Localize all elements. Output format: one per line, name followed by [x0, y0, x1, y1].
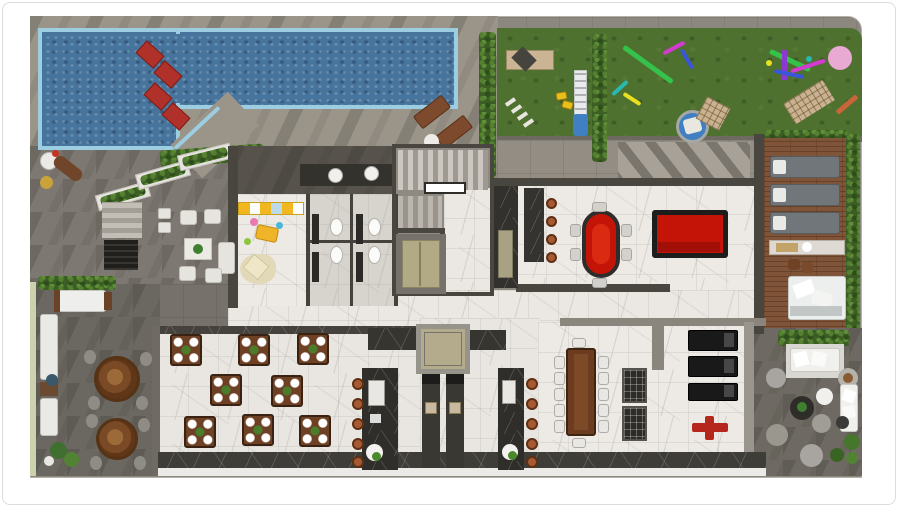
hedge-deck-right — [846, 134, 860, 332]
rt1-chair-1 — [84, 350, 96, 364]
toilet-4 — [368, 246, 381, 264]
bar-sink-left-small — [370, 414, 381, 423]
terrace-steps — [102, 202, 142, 238]
slide-base — [573, 114, 588, 136]
restroom-wall-mid — [308, 240, 398, 243]
dining-table-4 — [210, 374, 242, 406]
lounge-pouf-4 — [800, 444, 823, 467]
deck-chair-1 — [788, 259, 800, 270]
armchair-2 — [204, 209, 221, 224]
deck-counter-plate — [802, 242, 812, 252]
kids-toy-pink — [250, 218, 258, 226]
bar-stool-l4 — [352, 438, 364, 450]
lounge-dark-table-plant — [797, 402, 807, 412]
rt1-chair-3 — [88, 396, 100, 410]
long-table-chair-head — [572, 338, 586, 348]
long-table-chair-l3 — [554, 388, 565, 401]
poker-chair-6 — [592, 278, 607, 288]
dining-table-3 — [297, 333, 329, 365]
poker-chair-3 — [621, 224, 632, 237]
poker-table-inner — [592, 224, 610, 264]
dining-table-7 — [242, 414, 274, 446]
bl-bench-1 — [40, 314, 58, 380]
bar-stool-l5 — [352, 456, 364, 468]
kids-toy-blue — [276, 222, 283, 229]
armchair-4 — [205, 268, 222, 283]
left-wall — [30, 282, 36, 476]
poker-chair-1 — [570, 224, 581, 237]
lounge-plant-1 — [844, 434, 860, 450]
long-table-chair-r4 — [598, 404, 609, 417]
gym-bench-red-v — [705, 416, 714, 440]
lounge-pouf-1 — [766, 368, 786, 388]
toilet-3 — [368, 218, 381, 236]
rt2-chair-2 — [138, 418, 150, 432]
skylight-inner — [424, 332, 462, 366]
lounge-pouf-3 — [766, 424, 788, 446]
gym-machine-1-pad — [724, 333, 734, 347]
deck-counter-tray — [776, 243, 798, 252]
long-table-runner — [574, 354, 588, 430]
bl-planter-row — [38, 276, 116, 290]
bar-stool-l1 — [352, 378, 364, 390]
poker-chair-5 — [592, 202, 607, 212]
rt1-chair-4 — [136, 396, 148, 410]
gym-dot-teal — [806, 56, 812, 62]
gym-machine-3-pad — [724, 385, 734, 397]
bar-back-counter-right — [470, 330, 506, 350]
dining-table-1 — [170, 334, 202, 366]
toilet-1 — [330, 218, 343, 236]
bl-sofa-arm-1 — [54, 290, 60, 312]
buffet-station-2-top — [446, 374, 464, 384]
pool-merge-b — [44, 34, 452, 103]
bottom-walkway — [158, 468, 766, 476]
sun-lounger-pillow-2 — [773, 188, 786, 202]
armchair-1 — [180, 210, 197, 225]
dining-table-8 — [299, 415, 331, 447]
bar-stool-r5 — [526, 456, 538, 468]
coffee-machine-2 — [449, 402, 461, 414]
small-chair-2 — [158, 222, 171, 233]
billiard-table-shade — [658, 242, 720, 252]
rt2-chair-3 — [90, 456, 102, 470]
wine-rack-2 — [622, 406, 647, 441]
bar-stool-r1 — [526, 378, 538, 390]
games-room-wall-right — [754, 134, 764, 334]
bar-stool-r3 — [526, 418, 538, 430]
long-table-chair-l5 — [554, 420, 565, 433]
bar-stool-r4 — [526, 438, 538, 450]
kids-lockers — [238, 202, 304, 215]
coffee-table-plant — [193, 244, 203, 254]
lounge-white-table — [816, 388, 833, 405]
bar-stool-l3 — [352, 418, 364, 430]
column-block — [652, 324, 664, 370]
stall-block-4 — [356, 252, 363, 282]
rt1-chair-2 — [140, 352, 152, 366]
lounge-cushion-2 — [811, 351, 827, 367]
core-wall-top — [392, 144, 494, 148]
stair-landing-sign — [424, 182, 466, 194]
poker-chair-4 — [621, 248, 632, 261]
pink-play-circle — [828, 46, 852, 70]
private-dining-wall-right — [744, 322, 754, 470]
rt2-chair-4 — [134, 456, 146, 470]
gym-dot-yellow — [766, 60, 772, 66]
bl-plant-2 — [64, 452, 79, 467]
lounge-side-table-tray — [843, 373, 853, 383]
long-table-chair-foot — [572, 438, 586, 448]
sun-lounger-pillow-1 — [773, 160, 786, 174]
restroom-wall-1 — [306, 194, 310, 306]
long-table-chair-r3 — [598, 388, 609, 401]
games-room-wall-top — [494, 178, 764, 186]
wine-rack-1 — [622, 368, 647, 403]
games-bar-stool-1 — [546, 198, 557, 209]
gym-machine-2-pad — [724, 359, 734, 373]
buffet-station-2 — [446, 374, 464, 468]
terrace-corner — [150, 284, 232, 330]
coffee-machine-1 — [425, 402, 437, 414]
long-table-chair-l1 — [554, 356, 565, 369]
games-bar-counter — [524, 188, 544, 262]
bar-plant-right — [508, 451, 517, 460]
bl-bench-2 — [40, 398, 58, 436]
games-room-door — [498, 230, 513, 278]
long-table-chair-r2 — [598, 372, 609, 385]
sun-lounger-pillow-3 — [773, 216, 786, 230]
long-table-chair-l2 — [554, 372, 565, 385]
dining-table-5 — [271, 375, 303, 407]
bl-pot-white — [44, 456, 54, 466]
games-bar-stool-2 — [546, 216, 557, 227]
slide-tower — [574, 70, 587, 118]
round-table-2 — [96, 418, 138, 460]
long-table-chair-r1 — [598, 356, 609, 369]
kids-toy-green — [244, 238, 251, 245]
buffet-station-1-top — [422, 374, 440, 384]
bl-sofa-top — [58, 290, 106, 312]
long-table-chair-r5 — [598, 420, 609, 433]
games-bar-stool-4 — [546, 252, 557, 263]
lounge-pouf-2 — [812, 414, 831, 433]
wall-kids-left — [228, 146, 238, 308]
stall-block-3 — [356, 214, 363, 244]
small-chair-1 — [158, 208, 171, 219]
restroom-wall-2 — [350, 194, 353, 306]
elevator-door-line — [419, 242, 421, 286]
wash-basin-1 — [328, 168, 343, 183]
staircase-lower — [398, 196, 442, 232]
restroom-floor — [308, 194, 398, 306]
floor-plan-rendering — [0, 0, 900, 509]
elevator-lobby — [444, 188, 494, 294]
bar-stool-l2 — [352, 398, 364, 410]
toilet-2 — [330, 246, 343, 264]
bl-sofa-arm-2 — [104, 292, 112, 310]
poker-chair-2 — [570, 248, 581, 261]
bar-back-counter-left — [368, 328, 416, 350]
hedge-mid-lawn — [592, 34, 607, 162]
round-table-1 — [94, 356, 140, 402]
black-bench — [104, 240, 138, 270]
daybed-throw — [790, 306, 842, 316]
lounge-plant-2 — [830, 448, 844, 462]
rt2-chair-1 — [86, 414, 98, 428]
armchair-3 — [179, 266, 196, 281]
stall-block-2 — [312, 252, 319, 282]
dining-table-2 — [238, 334, 270, 366]
bar-plant-left — [372, 452, 381, 461]
elevator-car — [402, 240, 440, 288]
bar-sink-left — [368, 380, 385, 406]
bar-stool-r2 — [526, 398, 538, 410]
deck-chair-2 — [802, 262, 813, 273]
gold-pouf — [40, 176, 53, 189]
dining-table-6 — [184, 416, 216, 448]
lounge-plant-pot — [836, 416, 849, 429]
core-inner-wall-h — [396, 228, 444, 233]
lounge-plant-3 — [846, 452, 858, 464]
stall-block-1 — [312, 214, 319, 244]
long-table-chair-l4 — [554, 404, 565, 417]
games-bar-stool-3 — [546, 234, 557, 245]
bar-sink-right — [502, 380, 516, 404]
buffet-station-1 — [422, 374, 440, 468]
bl-blue-table — [46, 374, 58, 386]
wash-basin-2 — [364, 166, 379, 181]
